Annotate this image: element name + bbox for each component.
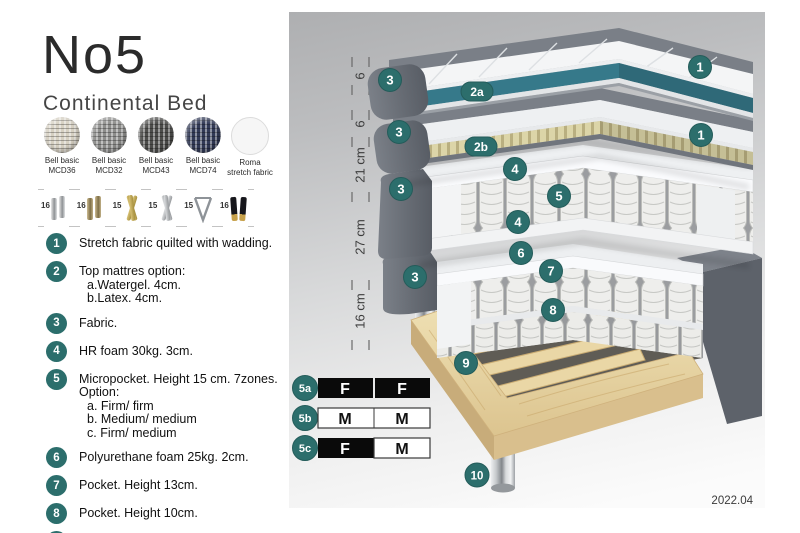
- badge-2b: 2b: [465, 137, 497, 156]
- dim-16cm: 16 cm: [353, 293, 368, 328]
- svg-text:7: 7: [547, 264, 554, 279]
- twisted-silver-leg-icon: [156, 193, 178, 223]
- badge-8: 8: [542, 299, 565, 322]
- info-panel: No5 Continental Bed Bell basicMCD36 Bell…: [0, 0, 289, 533]
- right-end-rail: [697, 185, 735, 240]
- legend-item-1: 1 Stretch fabric quilted with wadding.: [46, 233, 296, 254]
- black-gold-leg-icon: [228, 193, 250, 223]
- legend-badge: 4: [46, 341, 67, 362]
- svg-text:5c: 5c: [299, 443, 311, 455]
- badge-4-top: 4: [504, 158, 527, 181]
- legend-badge: 3: [46, 313, 67, 334]
- svg-text:1: 1: [697, 128, 704, 143]
- svg-text:4: 4: [511, 162, 519, 177]
- diagram-panel: 6 6 21 cm 27 cm 16 cm: [289, 12, 765, 508]
- svg-text:4: 4: [514, 215, 522, 230]
- legend-item-3: 3 Fabric.: [46, 313, 296, 334]
- svg-text:1: 1: [696, 60, 703, 75]
- leg-option-twisted-silver: 15: [148, 187, 179, 229]
- leg-option-cylinder-brass: 16: [77, 187, 108, 229]
- svg-text:5: 5: [555, 189, 562, 204]
- svg-text:M: M: [338, 411, 351, 428]
- leg-option-cylinder-silver: 16: [41, 187, 72, 229]
- fabric-swatch-mcd74: Bell basicMCD74: [181, 117, 225, 177]
- badge-2a: 2a: [461, 82, 493, 101]
- legend-item-4: 4 HR foam 30kg. 3cm.: [46, 341, 296, 362]
- svg-text:10: 10: [471, 471, 484, 483]
- legend-item-7: 7 Pocket. Height 13cm.: [46, 475, 296, 496]
- badge-6: 6: [510, 242, 533, 265]
- left-end-rail: [437, 281, 471, 349]
- fabric-swatch-circle: [185, 117, 221, 153]
- badge-3-topper: 3: [379, 69, 402, 92]
- fabric-swatches: Bell basicMCD36 Bell basicMCD32 Bell bas…: [40, 117, 272, 177]
- cylinder-silver-leg-icon: [49, 193, 71, 223]
- right-upholstered-front: [703, 258, 762, 424]
- svg-text:5a: 5a: [299, 383, 312, 395]
- version-label: 2022.04: [711, 495, 753, 507]
- fabric-swatch-mcd32: Bell basicMCD32: [87, 117, 131, 177]
- fabric-swatch-mcd36: Bell basicMCD36: [40, 117, 84, 177]
- svg-text:F: F: [340, 441, 350, 458]
- fabric-swatch-circle: [138, 117, 174, 153]
- infographic: No5 Continental Bed Bell basicMCD36 Bell…: [0, 0, 800, 533]
- dim-27cm: 27 cm: [353, 219, 368, 254]
- svg-text:5b: 5b: [299, 413, 312, 425]
- svg-text:F: F: [397, 381, 407, 398]
- svg-text:3: 3: [386, 73, 393, 88]
- dim-latex: 6: [353, 120, 368, 127]
- badge-1-sheet: 1: [690, 124, 713, 147]
- legend-item-5: 5 Micropocket. Height 15 cm. 7zones. Opt…: [46, 369, 296, 441]
- legend-badge: 8: [46, 503, 67, 524]
- leg-option-black-gold: 16: [220, 187, 251, 229]
- firmness-row-5a: 5a F F: [293, 376, 431, 401]
- svg-text:M: M: [395, 441, 408, 458]
- legend-badge: 7: [46, 475, 67, 496]
- svg-text:2a: 2a: [470, 85, 484, 99]
- cylinder-brass-leg-icon: [85, 193, 107, 223]
- firmness-table: 5a F F 5b M M 5c F M: [293, 376, 431, 461]
- legend-badge: 1: [46, 233, 67, 254]
- fabric-swatch-roma: Romastretch fabric: [228, 117, 272, 177]
- leg-option-twisted-gold: 15: [113, 187, 144, 229]
- svg-text:M: M: [395, 411, 408, 428]
- product-subtitle: Continental Bed: [43, 92, 207, 116]
- fabric-swatch-mcd43: Bell basicMCD43: [134, 117, 178, 177]
- twisted-gold-leg-icon: [121, 193, 143, 223]
- badge-1-top: 1: [689, 56, 712, 79]
- svg-text:9: 9: [462, 356, 469, 371]
- legend-badge: 5: [46, 369, 67, 390]
- dim-21cm: 21 cm: [353, 147, 368, 182]
- svg-text:F: F: [340, 381, 350, 398]
- legend-item-2: 2 Top mattres option: a.Watergel. 4cm. b…: [46, 261, 296, 306]
- svg-text:2b: 2b: [474, 140, 488, 154]
- svg-text:3: 3: [411, 270, 418, 285]
- legend-badge: 2: [46, 261, 67, 282]
- legend-list: 1 Stretch fabric quilted with wadding. 2…: [46, 233, 296, 533]
- svg-text:3: 3: [395, 125, 402, 140]
- legend-item-8: 8 Pocket. Height 10cm.: [46, 503, 296, 524]
- product-title: No5: [42, 24, 147, 86]
- badge-3-latex: 3: [388, 121, 411, 144]
- bed-diagram: 6 6 21 cm 27 cm 16 cm: [289, 12, 765, 508]
- fabric-swatch-circle: [231, 117, 269, 155]
- svg-text:8: 8: [549, 303, 556, 318]
- badge-4-bottom: 4: [507, 211, 530, 234]
- badge-7: 7: [540, 260, 563, 283]
- badge-10: 10: [465, 463, 489, 487]
- legend-item-6: 6 Polyurethane foam 25kg. 2cm.: [46, 447, 296, 468]
- fabric-swatch-circle: [44, 117, 80, 153]
- firmness-row-5b: 5b M M: [293, 406, 431, 431]
- hairpin-leg-icon: [192, 193, 214, 223]
- badge-9: 9: [455, 352, 478, 375]
- svg-text:3: 3: [397, 182, 404, 197]
- leg-option-hairpin: 15: [184, 187, 215, 229]
- svg-text:6: 6: [517, 246, 524, 261]
- dim-topper: 6: [353, 72, 368, 79]
- leg-options: 16 16 15 15: [41, 187, 251, 229]
- badge-3-main: 3: [390, 178, 413, 201]
- badge-3-lower: 3: [404, 266, 427, 289]
- fabric-swatch-circle: [91, 117, 127, 153]
- badge-5: 5: [548, 185, 571, 208]
- legend-badge: 6: [46, 447, 67, 468]
- firmness-row-5c: 5c F M: [293, 436, 431, 461]
- dimension-labels: 6 6 21 cm 27 cm 16 cm: [353, 72, 368, 328]
